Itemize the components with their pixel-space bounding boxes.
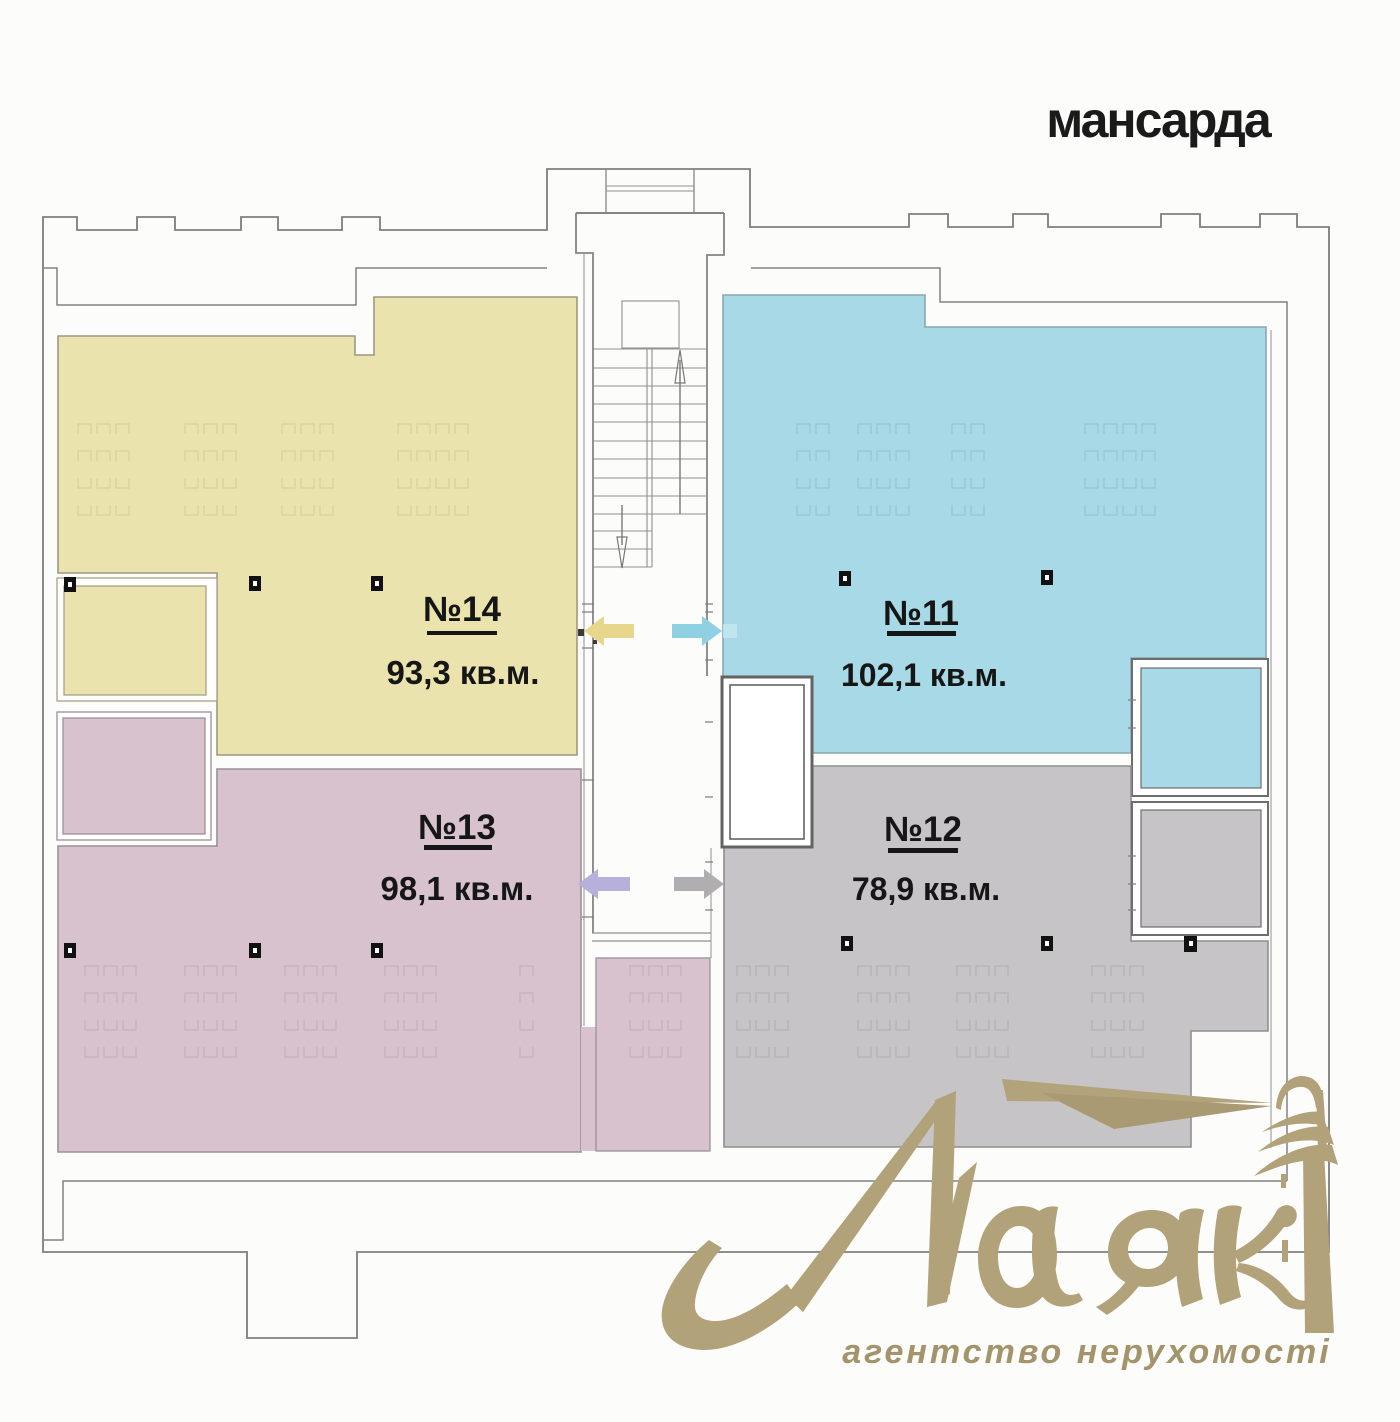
svg-text:№14: №14 bbox=[423, 590, 501, 629]
svg-text:№12: №12 bbox=[884, 810, 962, 849]
svg-text:№11: №11 bbox=[883, 594, 959, 633]
svg-text:78,9 кв.м.: 78,9 кв.м. bbox=[852, 871, 1000, 907]
svg-text:98,1 кв.м.: 98,1 кв.м. bbox=[381, 870, 534, 907]
svg-text:№13: №13 bbox=[418, 808, 496, 847]
svg-text:93,3 кв.м.: 93,3 кв.м. bbox=[387, 654, 540, 691]
svg-text:мансарда: мансарда bbox=[1046, 92, 1273, 148]
svg-text:102,1 кв.м.: 102,1 кв.м. bbox=[841, 657, 1007, 693]
svg-text:агентство нерухомості: агентство нерухомості bbox=[842, 1333, 1331, 1371]
